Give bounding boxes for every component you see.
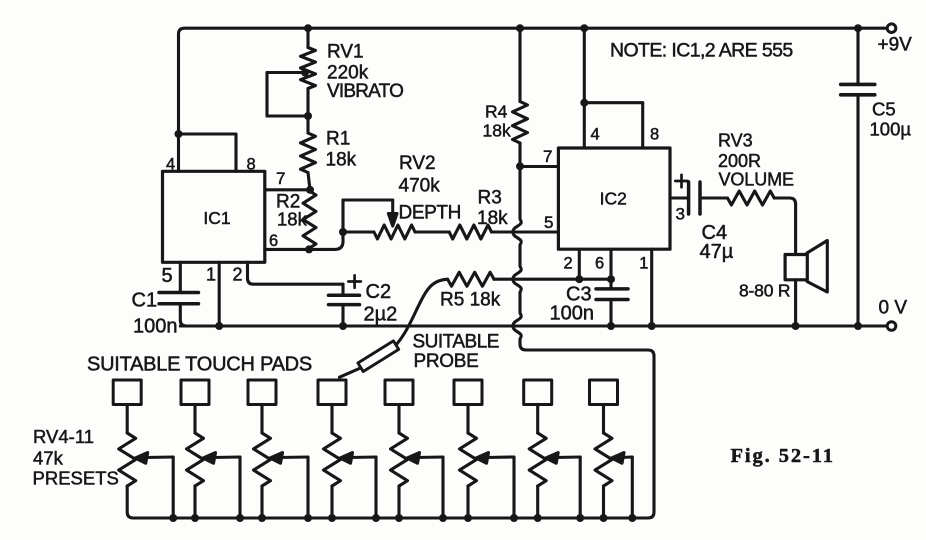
svg-text:100n: 100n [550,303,595,325]
svg-text:C5: C5 [872,99,896,120]
svg-text:18k: 18k [483,121,511,141]
svg-text:PRESETS: PRESETS [33,468,119,489]
svg-text:18k: 18k [326,150,357,171]
svg-text:DEPTH: DEPTH [399,203,461,224]
svg-text:NOTE: IC1,2 ARE 555: NOTE: IC1,2 ARE 555 [610,39,793,61]
svg-text:RV1: RV1 [327,41,364,62]
svg-text:R4: R4 [485,102,508,122]
svg-text:+9V: +9V [878,34,913,55]
svg-text:6: 6 [269,232,278,250]
svg-text:200R: 200R [718,151,761,171]
svg-text:8: 8 [247,156,256,174]
svg-text:SUITABLE TOUCH PADS: SUITABLE TOUCH PADS [87,353,312,375]
svg-text:18k: 18k [477,208,508,229]
svg-text:6: 6 [595,255,604,273]
svg-text:VIBRATO: VIBRATO [327,81,403,102]
svg-text:7: 7 [276,169,285,188]
svg-text:8-80 R: 8-80 R [739,281,790,301]
svg-text:R1: R1 [326,128,350,149]
svg-text:4: 4 [591,125,600,143]
svg-text:IC2: IC2 [600,188,627,208]
svg-text:R3: R3 [478,188,502,209]
svg-text:C1: C1 [132,289,158,311]
svg-text:RV3: RV3 [718,131,753,151]
svg-text:47µ: 47µ [700,241,734,263]
svg-text:8: 8 [650,125,659,143]
svg-text:5: 5 [544,213,553,232]
svg-text:5: 5 [162,265,173,287]
svg-text:VOLUME: VOLUME [719,169,795,189]
svg-text:2: 2 [233,265,243,285]
svg-text:470k: 470k [399,176,441,197]
svg-text:PROBE: PROBE [414,351,479,372]
svg-text:R5 18k: R5 18k [440,290,501,311]
svg-text:0 V: 0 V [879,298,908,319]
svg-text:2: 2 [564,255,573,273]
svg-text:100µ: 100µ [870,119,912,140]
svg-text:47k: 47k [33,448,64,469]
svg-text:RV2: RV2 [399,153,436,174]
svg-text:1: 1 [206,265,216,285]
svg-text:1: 1 [639,255,648,273]
svg-text:SUITABLE: SUITABLE [413,331,499,352]
svg-text:IC1: IC1 [203,208,230,228]
svg-text:7: 7 [543,147,552,166]
svg-text:3: 3 [676,205,685,224]
svg-text:Fig. 52-11: Fig. 52-11 [731,445,835,467]
svg-text:100n: 100n [133,316,178,338]
svg-text:18k: 18k [277,209,308,230]
svg-text:RV4-11: RV4-11 [33,426,94,447]
svg-text:2µ2: 2µ2 [364,304,398,326]
svg-text:4: 4 [166,156,175,174]
svg-text:C2: C2 [366,281,392,303]
